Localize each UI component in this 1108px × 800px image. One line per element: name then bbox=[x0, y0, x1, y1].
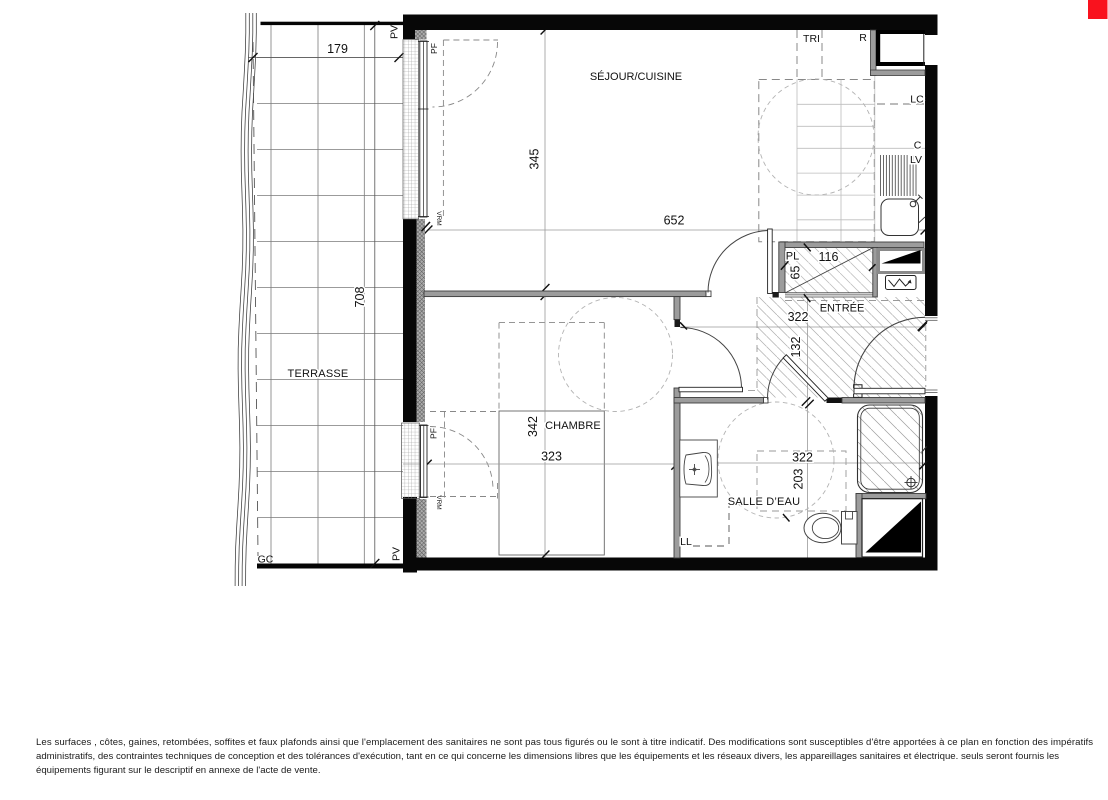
svg-text:132: 132 bbox=[789, 337, 803, 358]
svg-text:322: 322 bbox=[788, 310, 809, 324]
svg-text:LC: LC bbox=[910, 94, 924, 106]
svg-text:PV: PV bbox=[389, 25, 401, 39]
svg-text:PF: PF bbox=[429, 43, 439, 54]
svg-text:VRM: VRM bbox=[435, 495, 442, 509]
svg-text:PV: PV bbox=[391, 547, 403, 561]
svg-text:PL: PL bbox=[786, 251, 799, 263]
svg-text:65: 65 bbox=[789, 266, 803, 280]
svg-text:342: 342 bbox=[526, 416, 540, 437]
svg-text:CHAMBRE: CHAMBRE bbox=[545, 420, 601, 432]
svg-text:323: 323 bbox=[541, 450, 562, 464]
svg-text:VRM: VRM bbox=[435, 211, 442, 225]
svg-text:652: 652 bbox=[664, 214, 685, 228]
svg-text:PF: PF bbox=[429, 428, 439, 439]
svg-text:TERRASSE: TERRASSE bbox=[288, 368, 349, 380]
svg-text:LL: LL bbox=[680, 536, 692, 548]
svg-text:LV: LV bbox=[910, 154, 922, 166]
svg-text:SÉJOUR/CUISINE: SÉJOUR/CUISINE bbox=[590, 70, 682, 83]
svg-text:116: 116 bbox=[819, 250, 839, 264]
svg-text:708: 708 bbox=[353, 287, 367, 308]
svg-text:TRI: TRI bbox=[803, 33, 820, 45]
svg-text:345: 345 bbox=[528, 149, 542, 170]
svg-text:322: 322 bbox=[792, 451, 813, 465]
svg-text:R: R bbox=[859, 32, 867, 44]
svg-text:203: 203 bbox=[792, 469, 806, 490]
svg-text:C: C bbox=[914, 140, 922, 152]
svg-text:SALLE D’EAU: SALLE D’EAU bbox=[728, 496, 801, 508]
svg-text:GC: GC bbox=[258, 554, 274, 566]
svg-text:179: 179 bbox=[327, 42, 348, 56]
svg-text:ENTRÉE: ENTRÉE bbox=[820, 302, 865, 315]
